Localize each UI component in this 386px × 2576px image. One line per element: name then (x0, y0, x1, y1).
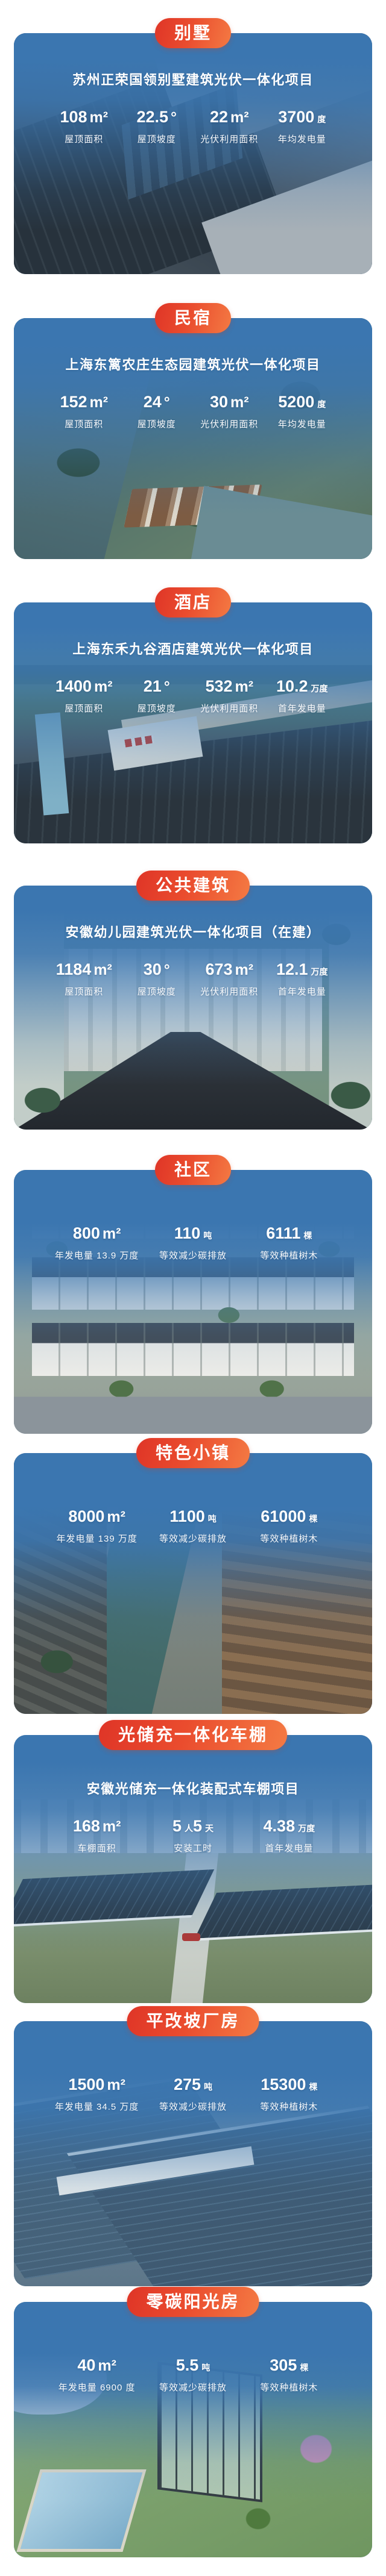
category-badge-label: 社区 (174, 1160, 212, 1179)
stat-pv-area: 30m² 光伏利用面积 (193, 394, 266, 430)
stat-value: 10.2万度 (266, 678, 339, 695)
stat-roof-slope: 30° 屋顶坡度 (121, 961, 194, 998)
stat-unit: ° (164, 963, 170, 978)
stats-row: 108m² 屋顶面积 22.5° 屋顶坡度 22m² 光伏利用面积 3700度 … (14, 109, 372, 145)
stat-unit: 棵 (309, 2083, 317, 2091)
stat-value: 800m² (49, 1225, 145, 1242)
stat-label: 年发电量 6900 度 (49, 2381, 145, 2393)
stat-label: 等效减少碳排放 (145, 2381, 241, 2393)
stat-carbon-reduction: 275吨 等效减少碳排放 (145, 2077, 241, 2113)
stat-install-time: 5人5天 安装工时 (145, 1818, 241, 1854)
stat-unit: m² (107, 1510, 125, 1525)
stat-label: 等效种植树木 (241, 2381, 337, 2393)
section-town: 特色小镇 8000m² 年发电量 139 万度 1100吨 等效减少碳排放 61… (14, 1453, 372, 1714)
stats-row: 800m² 年发电量 13.9 万度 110吨 等效减少碳排放 6111棵 等效… (14, 1225, 372, 1261)
stat-unit: 吨 (204, 2083, 212, 2091)
card-content: 1500m² 年发电量 34.5 万度 275吨 等效减少碳排放 15300棵 … (14, 2021, 372, 2286)
stat-value: 1500m² (49, 2077, 145, 2093)
stat-unit: 度 (317, 115, 326, 123)
card-content: 安徽幼儿园建筑光伏一体化项目（在建） 1184m² 屋顶面积 30° 屋顶坡度 … (14, 886, 372, 1130)
stat-unit: 万度 (311, 968, 328, 976)
stat-label: 年发电量 139 万度 (49, 1532, 145, 1545)
category-badge-factory: 平改坡厂房 (127, 2006, 259, 2036)
stat-roof-slope: 24° 屋顶坡度 (121, 394, 194, 430)
stat-label: 首年发电量 (266, 702, 339, 714)
stat-value: 275吨 (145, 2077, 241, 2093)
category-badge-sunroom: 零碳阳光房 (127, 2287, 259, 2317)
stat-label: 屋顶面积 (48, 133, 121, 145)
stat-unit: m² (90, 395, 109, 410)
project-card-carport: 安徽光储充一体化装配式车棚项目 168m² 车棚面积 5人5天 安装工时 4.3… (14, 1735, 372, 2003)
project-title: 上海东篱农庄生态园建筑光伏一体化项目 (65, 354, 320, 374)
project-card-town: 8000m² 年发电量 139 万度 1100吨 等效减少碳排放 61000棵 … (14, 1453, 372, 1714)
stats-row: 168m² 车棚面积 5人5天 安装工时 4.38万度 首年发电量 (14, 1818, 372, 1854)
stat-label: 屋顶面积 (48, 417, 121, 430)
stat-first-year-generation: 12.1万度 首年发电量 (266, 961, 339, 998)
category-badge-town: 特色小镇 (136, 1438, 250, 1468)
stat-label: 车棚面积 (49, 1842, 145, 1854)
category-badge-villa: 别墅 (155, 18, 231, 48)
stat-value: 22.5° (121, 109, 194, 125)
stat-annual-generation: 5200度 年均发电量 (266, 394, 339, 430)
card-content: 上海东篱农庄生态园建筑光伏一体化项目 152m² 屋顶面积 24° 屋顶坡度 3… (14, 318, 372, 559)
stat-roof-area: 108m² 屋顶面积 (48, 109, 121, 145)
stat-roof-area: 152m² 屋顶面积 (48, 394, 121, 430)
stat-unit: m² (230, 110, 249, 125)
stats-row: 40m² 年发电量 6900 度 5.5吨 等效减少碳排放 305棵 等效种植树… (14, 2357, 372, 2393)
stat-trees-planted: 61000棵 等效种植树木 (241, 1508, 337, 1545)
stat-unit: m² (90, 110, 109, 125)
stat-roof-slope: 22.5° 屋顶坡度 (121, 109, 194, 145)
stat-first-year-generation: 4.38万度 首年发电量 (241, 1818, 337, 1854)
section-factory: 平改坡厂房 1500m² 年发电量 34.5 万度 275吨 等效减少碳排放 1… (14, 2021, 372, 2286)
category-badge-carport: 光储充一体化车棚 (99, 1720, 287, 1750)
stat-value: 15300棵 (241, 2077, 337, 2093)
section-public-building: 公共建筑 安徽幼儿园建筑光伏一体化项目（在建） 1184m² 屋顶面积 30° … (14, 886, 372, 1130)
category-badge-label: 平改坡厂房 (146, 2012, 239, 2030)
category-badge-label: 零碳阳光房 (146, 2292, 239, 2311)
stat-unit: m² (103, 1819, 121, 1834)
stat-unit: m² (107, 2078, 125, 2093)
stat-label: 光伏利用面积 (193, 985, 266, 998)
category-badge-community: 社区 (155, 1155, 231, 1185)
section-villa: 别墅 苏州正荣国领别墅建筑光伏一体化项目 108m² 屋顶面积 22.5° 屋顶… (14, 33, 372, 274)
section-hotel: 酒店 上海东禾九谷酒店建筑光伏一体化项目 1400m² 屋顶面积 21° 屋顶坡… (14, 602, 372, 843)
stat-unit: ° (171, 110, 177, 125)
stats-row: 1400m² 屋顶面积 21° 屋顶坡度 532m² 光伏利用面积 10.2万度… (14, 678, 372, 714)
stat-value: 24° (121, 394, 194, 410)
stat-label: 年均发电量 (266, 133, 339, 145)
stat-label: 等效减少碳排放 (145, 1532, 241, 1545)
stat-label: 光伏利用面积 (193, 133, 266, 145)
stat-unit: 万度 (311, 684, 328, 693)
stat-value: 1184m² (48, 961, 121, 978)
stats-row: 8000m² 年发电量 139 万度 1100吨 等效减少碳排放 61000棵 … (14, 1508, 372, 1545)
stat-value: 168m² (49, 1818, 145, 1834)
category-badge-public-building: 公共建筑 (136, 871, 250, 901)
stat-unit: ° (164, 395, 170, 410)
stat-value: 305棵 (241, 2357, 337, 2374)
category-badge-hotel: 酒店 (155, 587, 231, 617)
stat-unit: 棵 (303, 1231, 312, 1240)
stat-trees-planted: 15300棵 等效种植树木 (241, 2077, 337, 2113)
stat-value: 108m² (48, 109, 121, 125)
stat-value: 3700度 (266, 109, 339, 125)
category-badge-label: 公共建筑 (156, 876, 230, 895)
project-title: 上海东禾九谷酒店建筑光伏一体化项目 (72, 639, 314, 658)
stat-label: 屋顶坡度 (121, 417, 194, 430)
stat-unit: 吨 (203, 1231, 212, 1240)
project-card-public-building: 安徽幼儿园建筑光伏一体化项目（在建） 1184m² 屋顶面积 30° 屋顶坡度 … (14, 886, 372, 1130)
stat-label: 首年发电量 (241, 1842, 337, 1854)
stats-row: 1500m² 年发电量 34.5 万度 275吨 等效减少碳排放 15300棵 … (14, 2077, 372, 2113)
stat-roof-slope: 21° 屋顶坡度 (121, 678, 194, 714)
category-badge-label: 酒店 (174, 593, 212, 611)
stat-unit: ° (164, 680, 170, 695)
stat-value: 532m² (193, 678, 266, 695)
section-sunroom: 零碳阳光房 40m² 年发电量 6900 度 5.5吨 等效减少碳排放 305棵 (14, 2302, 372, 2557)
project-title: 苏州正荣国领别墅建筑光伏一体化项目 (72, 69, 314, 89)
stats-row: 152m² 屋顶面积 24° 屋顶坡度 30m² 光伏利用面积 5200度 年均… (14, 394, 372, 430)
stat-label: 等效减少碳排放 (145, 2100, 241, 2113)
stat-value: 61000棵 (241, 1508, 337, 1525)
stat-value: 4.38万度 (241, 1818, 337, 1834)
category-badge-label: 民宿 (174, 308, 212, 327)
stat-roof-area: 1184m² 屋顶面积 (48, 961, 121, 998)
stat-pv-area: 800m² 年发电量 13.9 万度 (49, 1225, 145, 1261)
stat-label: 等效减少碳排放 (145, 1249, 241, 1261)
stat-pv-area: 673m² 光伏利用面积 (193, 961, 266, 998)
stat-unit: m² (98, 2359, 116, 2374)
stat-unit: 吨 (208, 1515, 217, 1523)
category-badge-label: 特色小镇 (156, 1443, 230, 1462)
stat-value: 1100吨 (145, 1508, 241, 1525)
stat-value: 6111棵 (241, 1225, 337, 1242)
project-card-hotel: 上海东禾九谷酒店建筑光伏一体化项目 1400m² 屋顶面积 21° 屋顶坡度 5… (14, 602, 372, 843)
stat-unit: 度 (317, 400, 326, 408)
stat-value: 110吨 (145, 1225, 241, 1242)
stat-unit: 人 (185, 1824, 193, 1833)
project-card-factory: 1500m² 年发电量 34.5 万度 275吨 等效减少碳排放 15300棵 … (14, 2021, 372, 2286)
category-badge-label: 别墅 (174, 23, 212, 42)
stat-unit: m² (93, 963, 112, 978)
stat-annual-generation: 3700度 年均发电量 (266, 109, 339, 145)
solar-projects-infographic: { "colors": { "badge_red_start": "#df352… (0, 0, 386, 2576)
stat-unit: 棵 (309, 1515, 317, 1523)
stat-label: 屋顶坡度 (121, 985, 194, 998)
stat-label: 光伏利用面积 (193, 702, 266, 714)
stat-unit: m² (94, 680, 113, 695)
stat-value: 5200度 (266, 394, 339, 410)
stat-value: 22m² (193, 109, 266, 125)
stat-trees-planted: 6111棵 等效种植树木 (241, 1225, 337, 1261)
stat-trees-planted: 305棵 等效种植树木 (241, 2357, 337, 2393)
stat-value: 673m² (193, 961, 266, 978)
stat-value: 30m² (193, 394, 266, 410)
stat-carport-area: 168m² 车棚面积 (49, 1818, 145, 1854)
stat-value: 40m² (49, 2357, 145, 2374)
stat-label: 安装工时 (145, 1842, 241, 1854)
stat-label: 年均发电量 (266, 417, 339, 430)
stat-value: 21° (121, 678, 194, 695)
stat-label: 屋顶面积 (48, 702, 121, 714)
stat-unit: m² (103, 1227, 121, 1242)
section-carport: 光储充一体化车棚 安徽光储充一体化装配式车棚项目 168m² 车棚面积 5人5天… (14, 1735, 372, 2003)
stat-label: 光伏利用面积 (193, 417, 266, 430)
stat-pv-area: 532m² 光伏利用面积 (193, 678, 266, 714)
stat-value: 30° (121, 961, 194, 978)
stat-unit: 吨 (201, 2363, 210, 2372)
stat-pv-area: 40m² 年发电量 6900 度 (49, 2357, 145, 2393)
card-content: 上海东禾九谷酒店建筑光伏一体化项目 1400m² 屋顶面积 21° 屋顶坡度 5… (14, 602, 372, 843)
stat-unit: m² (230, 395, 249, 410)
card-content: 40m² 年发电量 6900 度 5.5吨 等效减少碳排放 305棵 等效种植树… (14, 2302, 372, 2557)
stat-label: 首年发电量 (266, 985, 339, 998)
category-badge-label: 光储充一体化车棚 (118, 1725, 268, 1744)
stat-label: 等效种植树木 (241, 1532, 337, 1545)
stat-carbon-reduction: 1100吨 等效减少碳排放 (145, 1508, 241, 1545)
stat-label: 屋顶坡度 (121, 702, 194, 714)
project-card-bnb: 上海东篱农庄生态园建筑光伏一体化项目 152m² 屋顶面积 24° 屋顶坡度 3… (14, 318, 372, 559)
card-content: 800m² 年发电量 13.9 万度 110吨 等效减少碳排放 6111棵 等效… (14, 1170, 372, 1434)
stat-pv-area: 1500m² 年发电量 34.5 万度 (49, 2077, 145, 2113)
stat-value: 12.1万度 (266, 961, 339, 978)
stat-unit: 棵 (300, 2363, 308, 2372)
section-community: 社区 800m² 年发电量 13.9 万度 110吨 等效减少碳排放 6111棵 (14, 1170, 372, 1434)
stat-roof-area: 1400m² 屋顶面积 (48, 678, 121, 714)
stat-carbon-reduction: 5.5吨 等效减少碳排放 (145, 2357, 241, 2393)
stat-first-year-generation: 10.2万度 首年发电量 (266, 678, 339, 714)
stats-row: 1184m² 屋顶面积 30° 屋顶坡度 673m² 光伏利用面积 12.1万度… (14, 961, 372, 998)
stat-label: 等效种植树木 (241, 1249, 337, 1261)
project-card-community: 800m² 年发电量 13.9 万度 110吨 等效减少碳排放 6111棵 等效… (14, 1170, 372, 1434)
project-card-villa: 苏州正荣国领别墅建筑光伏一体化项目 108m² 屋顶面积 22.5° 屋顶坡度 … (14, 33, 372, 274)
stat-value: 152m² (48, 394, 121, 410)
stat-pv-area: 22m² 光伏利用面积 (193, 109, 266, 145)
stat-label: 屋顶面积 (48, 985, 121, 998)
card-content: 8000m² 年发电量 139 万度 1100吨 等效减少碳排放 61000棵 … (14, 1453, 372, 1714)
card-content: 安徽光储充一体化装配式车棚项目 168m² 车棚面积 5人5天 安装工时 4.3… (14, 1735, 372, 2003)
project-title: 安徽幼儿园建筑光伏一体化项目（在建） (65, 922, 320, 941)
stat-label: 屋顶坡度 (121, 133, 194, 145)
stat-value: 5.5吨 (145, 2357, 241, 2374)
stat-value: 5人5天 (145, 1818, 241, 1834)
project-card-sunroom: 40m² 年发电量 6900 度 5.5吨 等效减少碳排放 305棵 等效种植树… (14, 2302, 372, 2557)
stat-carbon-reduction: 110吨 等效减少碳排放 (145, 1225, 241, 1261)
category-badge-bnb: 民宿 (155, 303, 231, 333)
stat-unit: m² (235, 963, 254, 978)
stat-label: 等效种植树木 (241, 2100, 337, 2113)
card-content: 苏州正荣国领别墅建筑光伏一体化项目 108m² 屋顶面积 22.5° 屋顶坡度 … (14, 33, 372, 274)
stat-label: 年发电量 13.9 万度 (49, 1249, 145, 1261)
stat-unit: 万度 (298, 1824, 315, 1833)
stat-unit: m² (235, 680, 254, 695)
project-title: 安徽光储充一体化装配式车棚项目 (87, 1778, 300, 1798)
section-bnb: 民宿 上海东篱农庄生态园建筑光伏一体化项目 152m² 屋顶面积 24° 屋顶坡… (14, 318, 372, 559)
stat-label: 年发电量 34.5 万度 (49, 2100, 145, 2113)
stat-value: 8000m² (49, 1508, 145, 1525)
stat-unit: 天 (205, 1824, 214, 1833)
stat-pv-area: 8000m² 年发电量 139 万度 (49, 1508, 145, 1545)
stat-value: 1400m² (48, 678, 121, 695)
